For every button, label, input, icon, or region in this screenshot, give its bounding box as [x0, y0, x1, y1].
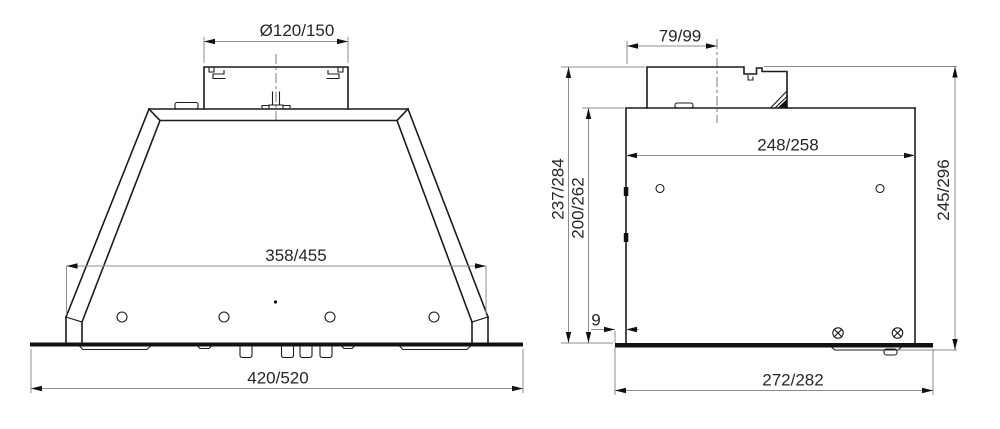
- technical-drawing-canvas: Ø120/150: [0, 0, 1000, 429]
- hood-drawing-svg: Ø120/150: [0, 0, 1000, 429]
- dim-label-inner-depth: 248/258: [757, 136, 818, 155]
- edge-tab: [624, 187, 629, 196]
- dim-label-overall-width: 420/520: [247, 369, 308, 388]
- dim-label-overall-height: 245/296: [934, 159, 953, 220]
- dim-label-height-to-duct-top: 237/284: [549, 158, 568, 219]
- base-plate: [615, 343, 933, 348]
- drawing-background: [0, 0, 1000, 429]
- dim-label-edge-offset: 9: [591, 311, 600, 330]
- pilot-hole: [274, 300, 277, 303]
- dim-label-body-height: 200/262: [569, 177, 588, 238]
- dim-label-duct-width: 79/99: [659, 27, 702, 46]
- dim-label-plate-depth: 272/282: [762, 371, 823, 390]
- edge-tab: [624, 233, 629, 242]
- base-plate: [30, 343, 523, 347]
- dim-label-body-width: 358/455: [265, 246, 326, 265]
- dim-label-duct-diameter: Ø120/150: [260, 21, 335, 40]
